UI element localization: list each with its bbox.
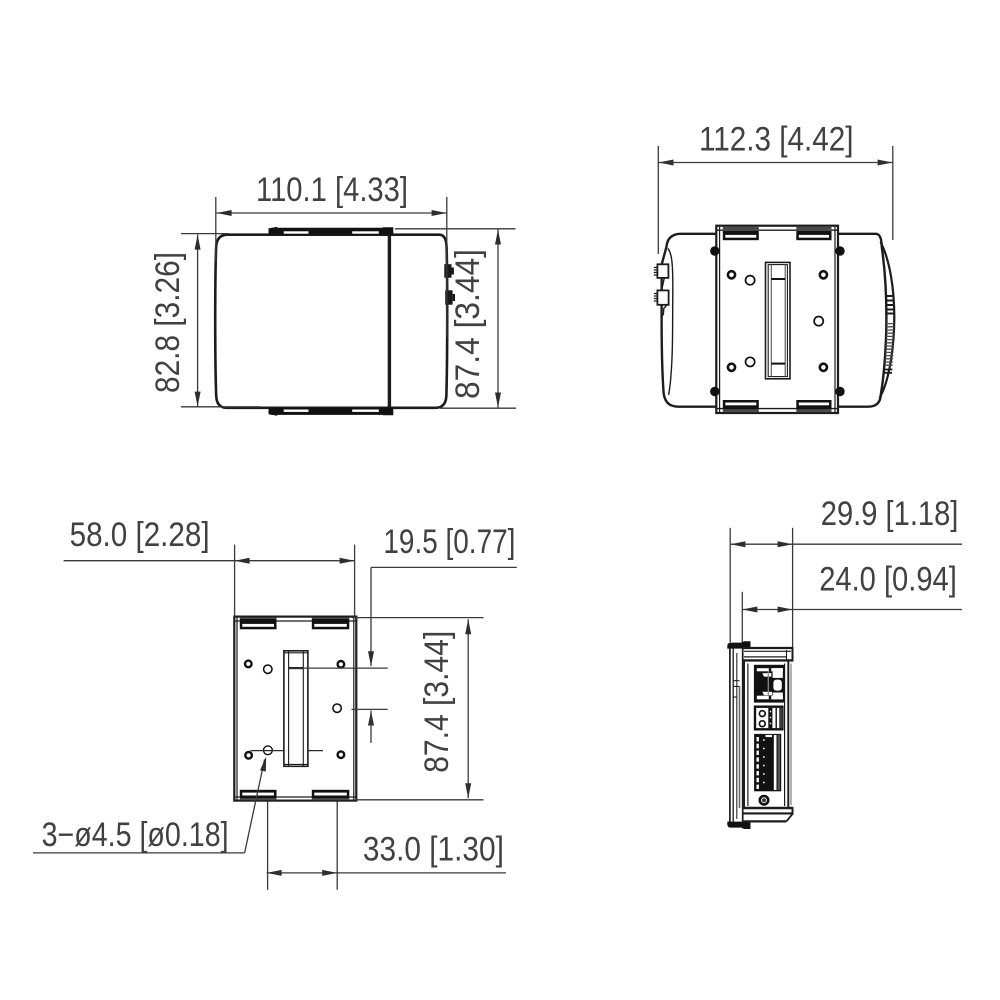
svg-text:33.0 [1.30]: 33.0 [1.30] — [363, 830, 504, 868]
svg-text:24.0 [0.94]: 24.0 [0.94] — [819, 560, 957, 598]
svg-text:112.3 [4.42]: 112.3 [4.42] — [699, 121, 854, 159]
svg-text:87.4 [3.44]: 87.4 [3.44] — [418, 631, 456, 773]
svg-text:82.8 [3.26]: 82.8 [3.26] — [149, 252, 187, 393]
svg-text:58.0 [2.28]: 58.0 [2.28] — [70, 516, 210, 554]
svg-text:3−ø4.5 [ø0.18]: 3−ø4.5 [ø0.18] — [42, 816, 229, 854]
svg-text:19.5 [0.77]: 19.5 [0.77] — [383, 523, 515, 561]
svg-text:87.4 [3.44]: 87.4 [3.44] — [449, 249, 487, 399]
svg-text:29.9 [1.18]: 29.9 [1.18] — [821, 495, 959, 533]
svg-text:110.1 [4.33]: 110.1 [4.33] — [256, 171, 408, 209]
